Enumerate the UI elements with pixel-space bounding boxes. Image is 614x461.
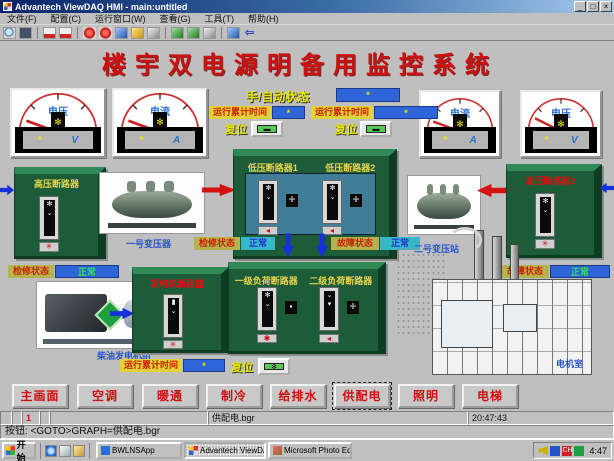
load-breaker-2-light: ◂ — [319, 334, 339, 343]
transformer-2-image — [407, 175, 481, 235]
fault-status-center-label: 故障状态 — [331, 237, 379, 250]
hv-breaker-2-label: 高压断路器2 — [507, 174, 594, 187]
maintenance-status-left-value: 正常 — [55, 265, 119, 278]
meter-value: * — [38, 135, 42, 146]
flow-arrow-gen-to-brk — [110, 307, 134, 320]
fault-status-right-value: 正常 — [550, 265, 610, 278]
alarm-ball-icon[interactable] — [83, 27, 96, 39]
runtime1-value: * — [272, 106, 305, 119]
desktop-icon[interactable] — [59, 445, 71, 457]
task-photo-editor[interactable]: Microsoft Photo Editor — [268, 442, 352, 459]
monitor-icon[interactable] — [19, 27, 32, 39]
meter-value: * — [544, 135, 548, 146]
internet-explorer-icon[interactable] — [45, 445, 57, 457]
lv-panel: ✻⌄ ✛ ✻⌄ ✛ ◂ ◂ — [245, 173, 376, 235]
confirm-icon[interactable] — [171, 27, 184, 39]
meter-unit: A — [173, 135, 180, 146]
task-label: Microsoft Photo Editor — [284, 446, 352, 455]
task-icon — [101, 446, 110, 455]
menu-view[interactable]: 查看(G) — [153, 12, 198, 25]
windows-logo-icon — [6, 446, 15, 455]
menu-file[interactable]: 文件(F) — [0, 12, 44, 25]
task-bwlnsapp[interactable]: BWLNSApp — [96, 442, 182, 459]
mode-value: * — [336, 88, 400, 102]
status-bar: 1 供配电.bgr 20:47:43 — [0, 411, 614, 425]
hv-breaker-1-box: 高压断路器 ✻⌄ ✳ — [14, 167, 106, 259]
channels-icon[interactable] — [73, 445, 85, 457]
status-clock: 20:47:43 — [468, 411, 614, 425]
nav-hvac-ac[interactable]: 空调 — [77, 384, 133, 408]
lv-breaker-2-aux: ✛ — [350, 194, 362, 207]
hmi-canvas: 楼宇双电源明备用监控系统 电压 ✻ * V — [0, 41, 614, 411]
task-icon — [189, 446, 198, 455]
load-breaker-2-label: 二级负荷断路器 — [309, 274, 372, 287]
apply-icon[interactable] — [187, 27, 200, 39]
meter-unit: V — [571, 135, 578, 146]
hv-breaker-2-light: ✳ — [535, 239, 555, 249]
page-title: 楼宇双电源明备用监控系统 — [80, 45, 520, 80]
close-button[interactable]: × — [600, 1, 612, 12]
reset3-button[interactable]: ✻ — [258, 358, 290, 375]
reset3-label: 复位 — [231, 359, 253, 375]
task-viewdaq[interactable]: Advantech ViewDAQ HMI — [184, 442, 266, 459]
back-arrow-icon[interactable]: ⇦ — [243, 27, 256, 39]
flow-chart-icon[interactable] — [43, 27, 56, 39]
nav-cooling[interactable]: 制冷 — [206, 384, 262, 408]
package-icon[interactable] — [227, 27, 240, 39]
fault-status-right-label: 故障状态 — [501, 265, 549, 278]
reset2-button[interactable]: ▬ — [360, 121, 392, 137]
voltage-meter-1: 电压 ✻ * V — [10, 88, 106, 158]
recorder-icon[interactable] — [147, 27, 160, 39]
hv-breaker-1-switch[interactable]: ✻⌄ — [39, 196, 59, 240]
runtime3-value: * — [183, 359, 225, 372]
start-label: 开始 — [17, 438, 34, 461]
task-icon — [273, 446, 282, 455]
menu-config[interactable]: 配置(C) — [44, 12, 89, 25]
load-breaker-box: 一级负荷断路器 二级负荷断路器 ✻⌄ ▪ ⌄▾ ✛ ✱ ◂ — [228, 262, 386, 354]
window-title: Advantech ViewDAQ HMI - main:untitled — [15, 2, 187, 12]
incoming-arrow-right — [600, 182, 614, 194]
menu-help[interactable]: 帮助(H) — [241, 12, 286, 25]
nav-lighting[interactable]: 照明 — [398, 384, 454, 408]
load-breaker-2-switch[interactable]: ⌄▾ — [319, 287, 339, 331]
nav-heating[interactable]: 暖通 — [142, 384, 198, 408]
task-label: BWLNSApp — [112, 446, 155, 455]
menu-tools[interactable]: 工具(T) — [198, 12, 242, 25]
gen-breaker-box: 发电机断路器 ▮⌄ ✳ — [132, 267, 229, 353]
maintenance-status-left-label: 检修状态 — [8, 265, 54, 278]
transformer-1-image — [99, 172, 205, 234]
start-button[interactable]: 开始 — [2, 442, 36, 459]
meter-unit: V — [71, 135, 78, 146]
reset1-button[interactable]: ▬ — [251, 121, 283, 137]
gen-breaker-switch[interactable]: ▮⌄ — [163, 294, 183, 338]
load-breaker-1-label: 一级负荷断路器 — [235, 274, 298, 287]
reset2-label: 复位 — [335, 121, 357, 137]
load-breaker-1-switch[interactable]: ✻⌄ — [257, 287, 277, 331]
smoke-swirl — [448, 227, 482, 253]
lock-icon[interactable] — [131, 27, 144, 39]
runtime2-label: 运行累计时间 — [311, 106, 373, 119]
menu-run-window[interactable]: 运行窗口(W) — [88, 12, 153, 25]
flow-arrow-tr1-to-lv — [202, 183, 236, 197]
incoming-arrow-left — [0, 184, 14, 196]
down-arrow-1 — [282, 234, 295, 258]
transformer-1-label: 一号变压器 — [126, 237, 171, 250]
hv-breaker-1-label: 高压断路器 — [15, 177, 98, 190]
lv-breaker-1-light: ◂ — [258, 226, 278, 235]
runtime2-value: * — [374, 106, 438, 119]
status-cell-4 — [50, 411, 208, 425]
status-cell-1 — [0, 411, 12, 425]
current-meter-1: 电流 ✻ * A — [112, 88, 208, 158]
status-cell-2 — [12, 411, 22, 425]
lv-breaker-1-aux: ✛ — [286, 194, 298, 207]
mode-label: 手/自动状态 — [246, 88, 309, 105]
gen-breaker-light: ✳ — [163, 340, 183, 349]
quick-launch — [40, 443, 90, 459]
search-icon[interactable] — [3, 27, 16, 39]
voltage-meter-2: 电压 ✻ * V — [520, 90, 602, 158]
runtime1-label: 运行累计时间 — [209, 106, 271, 119]
meter-value: * — [140, 135, 144, 146]
app-window: Advantech ViewDAQ HMI - main:untitled _ … — [0, 0, 614, 461]
system-tray: CH 4:47 — [533, 442, 612, 459]
status-cell-3 — [40, 411, 50, 425]
hv-breaker-2-switch[interactable]: ✻⌄ — [535, 193, 555, 237]
current-graph-file: 供配电.bgr — [208, 411, 468, 425]
menu-bar: 文件(F) 配置(C) 运行窗口(W) 查看(G) 工具(T) 帮助(H) — [0, 13, 614, 25]
marker-icon[interactable] — [115, 27, 128, 39]
display-tray-icon[interactable] — [550, 446, 560, 456]
reset1-label: 复位 — [225, 121, 247, 137]
status-message-bar: 按钮: <GOTO>GRAPH=供配电.bgr — [0, 425, 614, 439]
runtime3-label: 运行累计时间 — [120, 359, 182, 372]
meter-value: * — [443, 135, 447, 146]
alarm-ball2-icon[interactable] — [99, 27, 112, 39]
exchange-icon[interactable] — [203, 27, 216, 39]
down-arrow-2 — [316, 234, 329, 258]
load-breaker-1-light: ✱ — [257, 334, 277, 343]
meter-band: * V — [525, 127, 597, 153]
lv-breaker-2-switch[interactable]: ✻⌄ — [322, 180, 342, 224]
maximize-button[interactable]: □ — [587, 1, 599, 12]
agent-tray-icon[interactable] — [574, 446, 584, 456]
volume-icon[interactable] — [538, 446, 548, 456]
lv-breaker-1-switch[interactable]: ✻⌄ — [258, 180, 278, 224]
maintenance-status-center-value: 正常 — [241, 237, 275, 250]
toolbar: ⇦ — [0, 25, 614, 41]
input-method-icon[interactable]: CH — [562, 446, 572, 456]
meter-band: * V — [15, 127, 101, 153]
maintenance-status-center-label: 检修状态 — [194, 237, 240, 250]
nav-power-distribution[interactable]: 供配电 — [334, 384, 390, 408]
trend-chart-icon[interactable] — [59, 27, 72, 39]
tray-clock: 4:47 — [586, 446, 607, 456]
nav-main-screen[interactable]: 主画面 — [12, 384, 68, 408]
minimize-button[interactable]: _ — [574, 1, 586, 12]
page-number: 1 — [22, 411, 40, 425]
taskbar: 开始 BWLNSApp Advantech ViewDAQ HMI Micros… — [0, 439, 614, 461]
load-breaker-2-aux: ✛ — [347, 301, 359, 314]
building-label: 电机室 — [556, 357, 583, 370]
load-breaker-1-aux: ▪ — [285, 301, 297, 314]
task-label: Advantech ViewDAQ HMI — [200, 446, 266, 455]
current-meter-2: 电流 ✻ * A — [419, 90, 501, 158]
hv-breaker-2-box: 高压断路器2 ✻⌄ ✳ — [506, 164, 602, 258]
app-icon — [3, 2, 12, 11]
hv-breaker-1-light: ✳ — [39, 242, 59, 252]
nav-water-supply[interactable]: 给排水 — [270, 384, 326, 408]
meter-unit: A — [470, 135, 477, 146]
flow-arrow-hv2-to-tr2 — [477, 183, 507, 198]
meter-band: * A — [424, 127, 496, 153]
meter-band: * A — [117, 127, 203, 153]
gen-breaker-label: 发电机断路器 — [133, 277, 221, 290]
nav-elevator[interactable]: 电梯 — [462, 384, 518, 408]
